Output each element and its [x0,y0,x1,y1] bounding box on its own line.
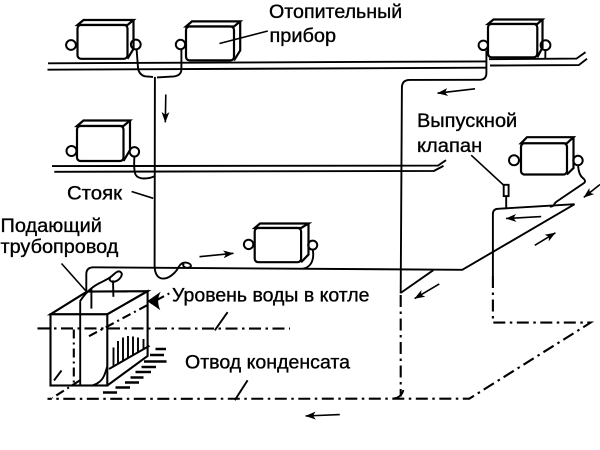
svg-text:трубопровод: трубопровод [1,236,120,258]
svg-text:Подающий: Подающий [1,215,102,237]
svg-text:прибор: прибор [270,25,337,47]
svg-text:Отопительный: Отопительный [269,1,402,23]
svg-text:Уровень воды в котле: Уровень воды в котле [172,284,370,306]
svg-text:клапан: клапан [417,135,482,157]
svg-text:Выпускной: Выпускной [417,110,517,132]
svg-text:Отвод конденсата: Отвод конденсата [185,351,350,373]
svg-text:Стояк: Стояк [67,183,122,205]
